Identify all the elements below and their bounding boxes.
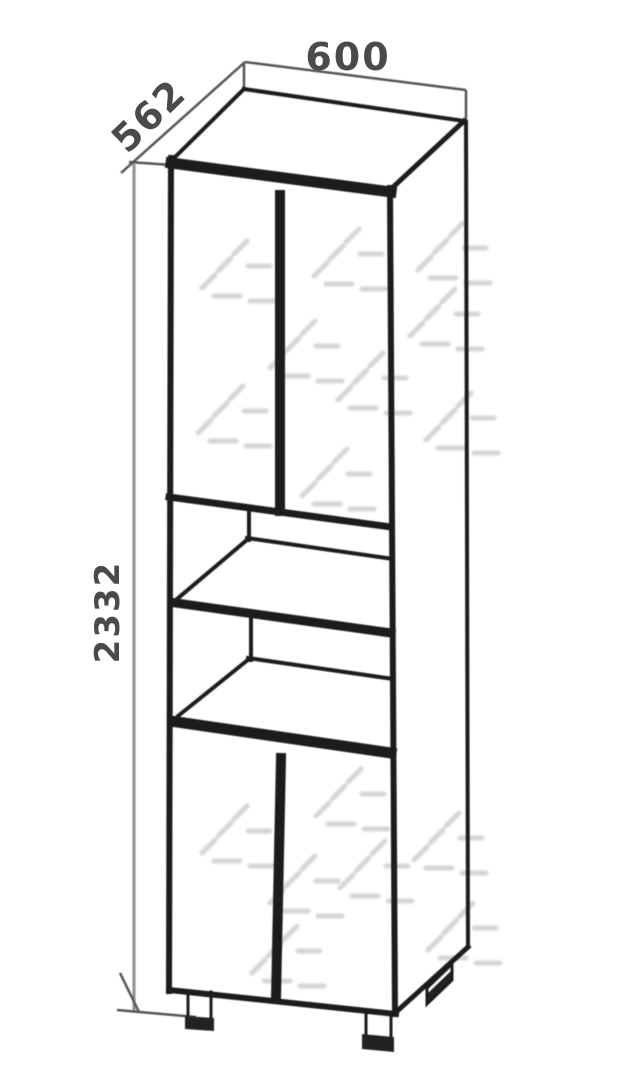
watermark-pattern: [198, 223, 500, 986]
front-left-leg: [185, 991, 214, 1031]
bottom-front-edge: [169, 990, 396, 1014]
back-right-edge: [466, 122, 468, 947]
floor-left-edge: [178, 659, 249, 716]
cabinet-top-panel: [171, 89, 464, 192]
upper-doors: [169, 195, 391, 527]
lower-doors: [276, 758, 281, 999]
shelf-left-edge: [177, 539, 248, 599]
drawing-canvas: 600 562 2332: [0, 0, 640, 1072]
shelf-front-edge: [176, 603, 391, 633]
side-bottom-edge: [395, 947, 468, 1013]
height-dimension-label: 2332: [88, 561, 128, 664]
open-niche: [176, 507, 393, 753]
shelf-back-edge: [247, 538, 393, 559]
front-left-edge: [169, 158, 171, 991]
niche-floor: [177, 658, 393, 753]
front-right-leg: [362, 1014, 394, 1052]
top-back-edge: [244, 89, 464, 121]
front-right-edge: [390, 188, 395, 1014]
width-dimension-label: 600: [305, 35, 390, 79]
lower-doors-divider: [276, 758, 281, 999]
top-right-edge: [391, 121, 464, 189]
middle-shelf: [176, 538, 393, 633]
cabinet-technical-drawing: 600 562 2332: [0, 0, 640, 1072]
floor-back-edge: [248, 658, 393, 679]
extension-line-bottom: [117, 1010, 196, 1017]
floor-front-edge: [177, 722, 391, 753]
top-front-edge: [171, 163, 391, 192]
dimension-tick-bottom: [120, 973, 139, 1012]
